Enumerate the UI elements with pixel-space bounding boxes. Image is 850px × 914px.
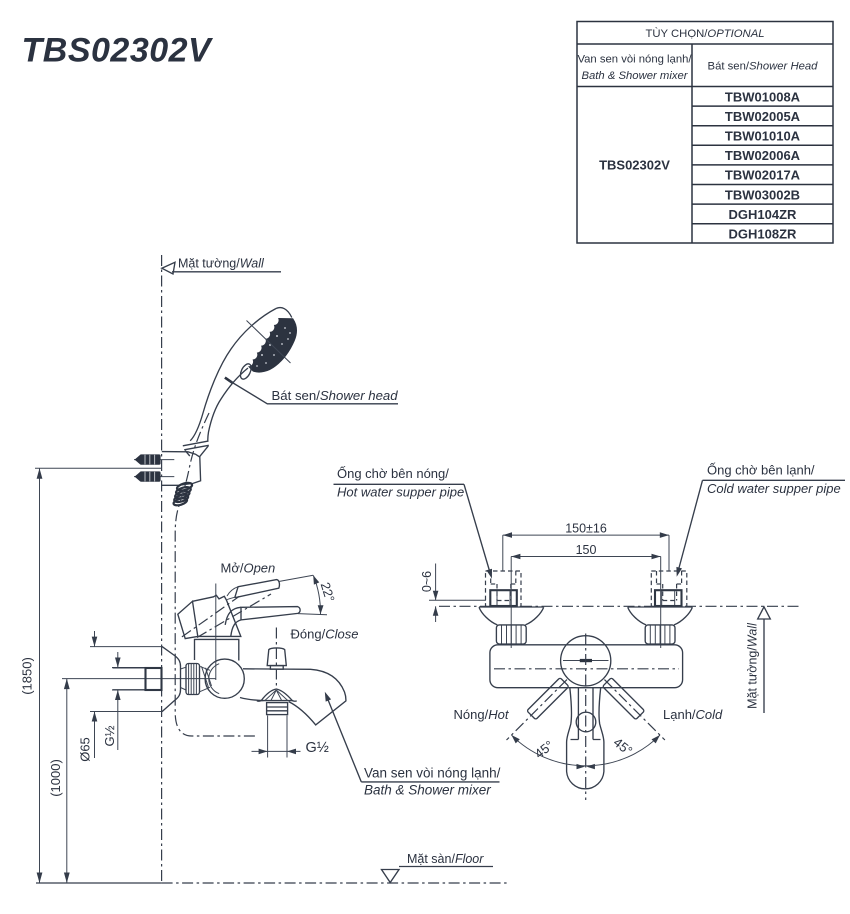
svg-text:TBS02302V: TBS02302V bbox=[599, 158, 670, 173]
svg-text:Van sen vòi nóng lạnh/: Van sen vòi nóng lạnh/ bbox=[364, 766, 501, 781]
svg-text:TBW03002B: TBW03002B bbox=[725, 187, 800, 202]
svg-text:45°: 45° bbox=[532, 737, 557, 761]
svg-text:150±16: 150±16 bbox=[565, 521, 607, 535]
svg-text:TBS02302V: TBS02302V bbox=[22, 31, 215, 69]
svg-text:Bath & Shower mixer: Bath & Shower mixer bbox=[364, 783, 491, 798]
svg-text:Ống chờ bên lạnh/: Ống chờ bên lạnh/ bbox=[707, 463, 815, 478]
svg-text:G½: G½ bbox=[306, 740, 329, 756]
svg-text:TBW01008A: TBW01008A bbox=[725, 89, 801, 104]
svg-text:Mở/Open: Mở/Open bbox=[221, 561, 276, 576]
svg-text:Bath & Shower mixer: Bath & Shower mixer bbox=[581, 70, 688, 82]
svg-text:DGH108ZR: DGH108ZR bbox=[729, 227, 798, 242]
svg-text:Ø65: Ø65 bbox=[78, 737, 93, 762]
svg-text:Hot water supper pipe: Hot water supper pipe bbox=[337, 485, 464, 500]
svg-text:Nóng/Hot: Nóng/Hot bbox=[454, 707, 510, 722]
svg-text:TBW02005A: TBW02005A bbox=[725, 109, 801, 124]
svg-text:Bát sen/Shower Head: Bát sen/Shower Head bbox=[708, 61, 819, 73]
svg-text:22°: 22° bbox=[318, 580, 338, 603]
svg-text:150: 150 bbox=[576, 543, 597, 557]
svg-text:Mặt tường/Wall: Mặt tường/Wall bbox=[178, 257, 265, 271]
svg-text:TBW01010A: TBW01010A bbox=[725, 129, 801, 144]
svg-text:0~6: 0~6 bbox=[420, 571, 434, 592]
svg-text:G½: G½ bbox=[102, 725, 117, 746]
svg-text:TBW02017A: TBW02017A bbox=[725, 168, 801, 183]
svg-text:Ống chờ bên nóng/: Ống chờ bên nóng/ bbox=[337, 466, 449, 481]
svg-text:(1000): (1000) bbox=[48, 759, 63, 797]
svg-text:TBW02006A: TBW02006A bbox=[725, 148, 801, 163]
svg-text:DGH104ZR: DGH104ZR bbox=[729, 207, 798, 222]
svg-text:Mặt tường/Wall: Mặt tường/Wall bbox=[746, 622, 760, 709]
svg-text:Van sen vòi nóng lạnh/: Van sen vòi nóng lạnh/ bbox=[577, 54, 692, 66]
svg-text:Lạnh/Cold: Lạnh/Cold bbox=[663, 707, 723, 722]
svg-text:Đóng/Close: Đóng/Close bbox=[291, 627, 359, 642]
svg-text:Bát sen/Shower head: Bát sen/Shower head bbox=[272, 388, 399, 403]
svg-text:(1850): (1850) bbox=[20, 657, 35, 695]
svg-text:Mặt sàn/Floor: Mặt sàn/Floor bbox=[407, 852, 484, 866]
svg-text:Cold water supper pipe: Cold water supper pipe bbox=[707, 481, 841, 496]
svg-text:TÙY CHỌN/OPTIONAL: TÙY CHỌN/OPTIONAL bbox=[645, 27, 764, 40]
